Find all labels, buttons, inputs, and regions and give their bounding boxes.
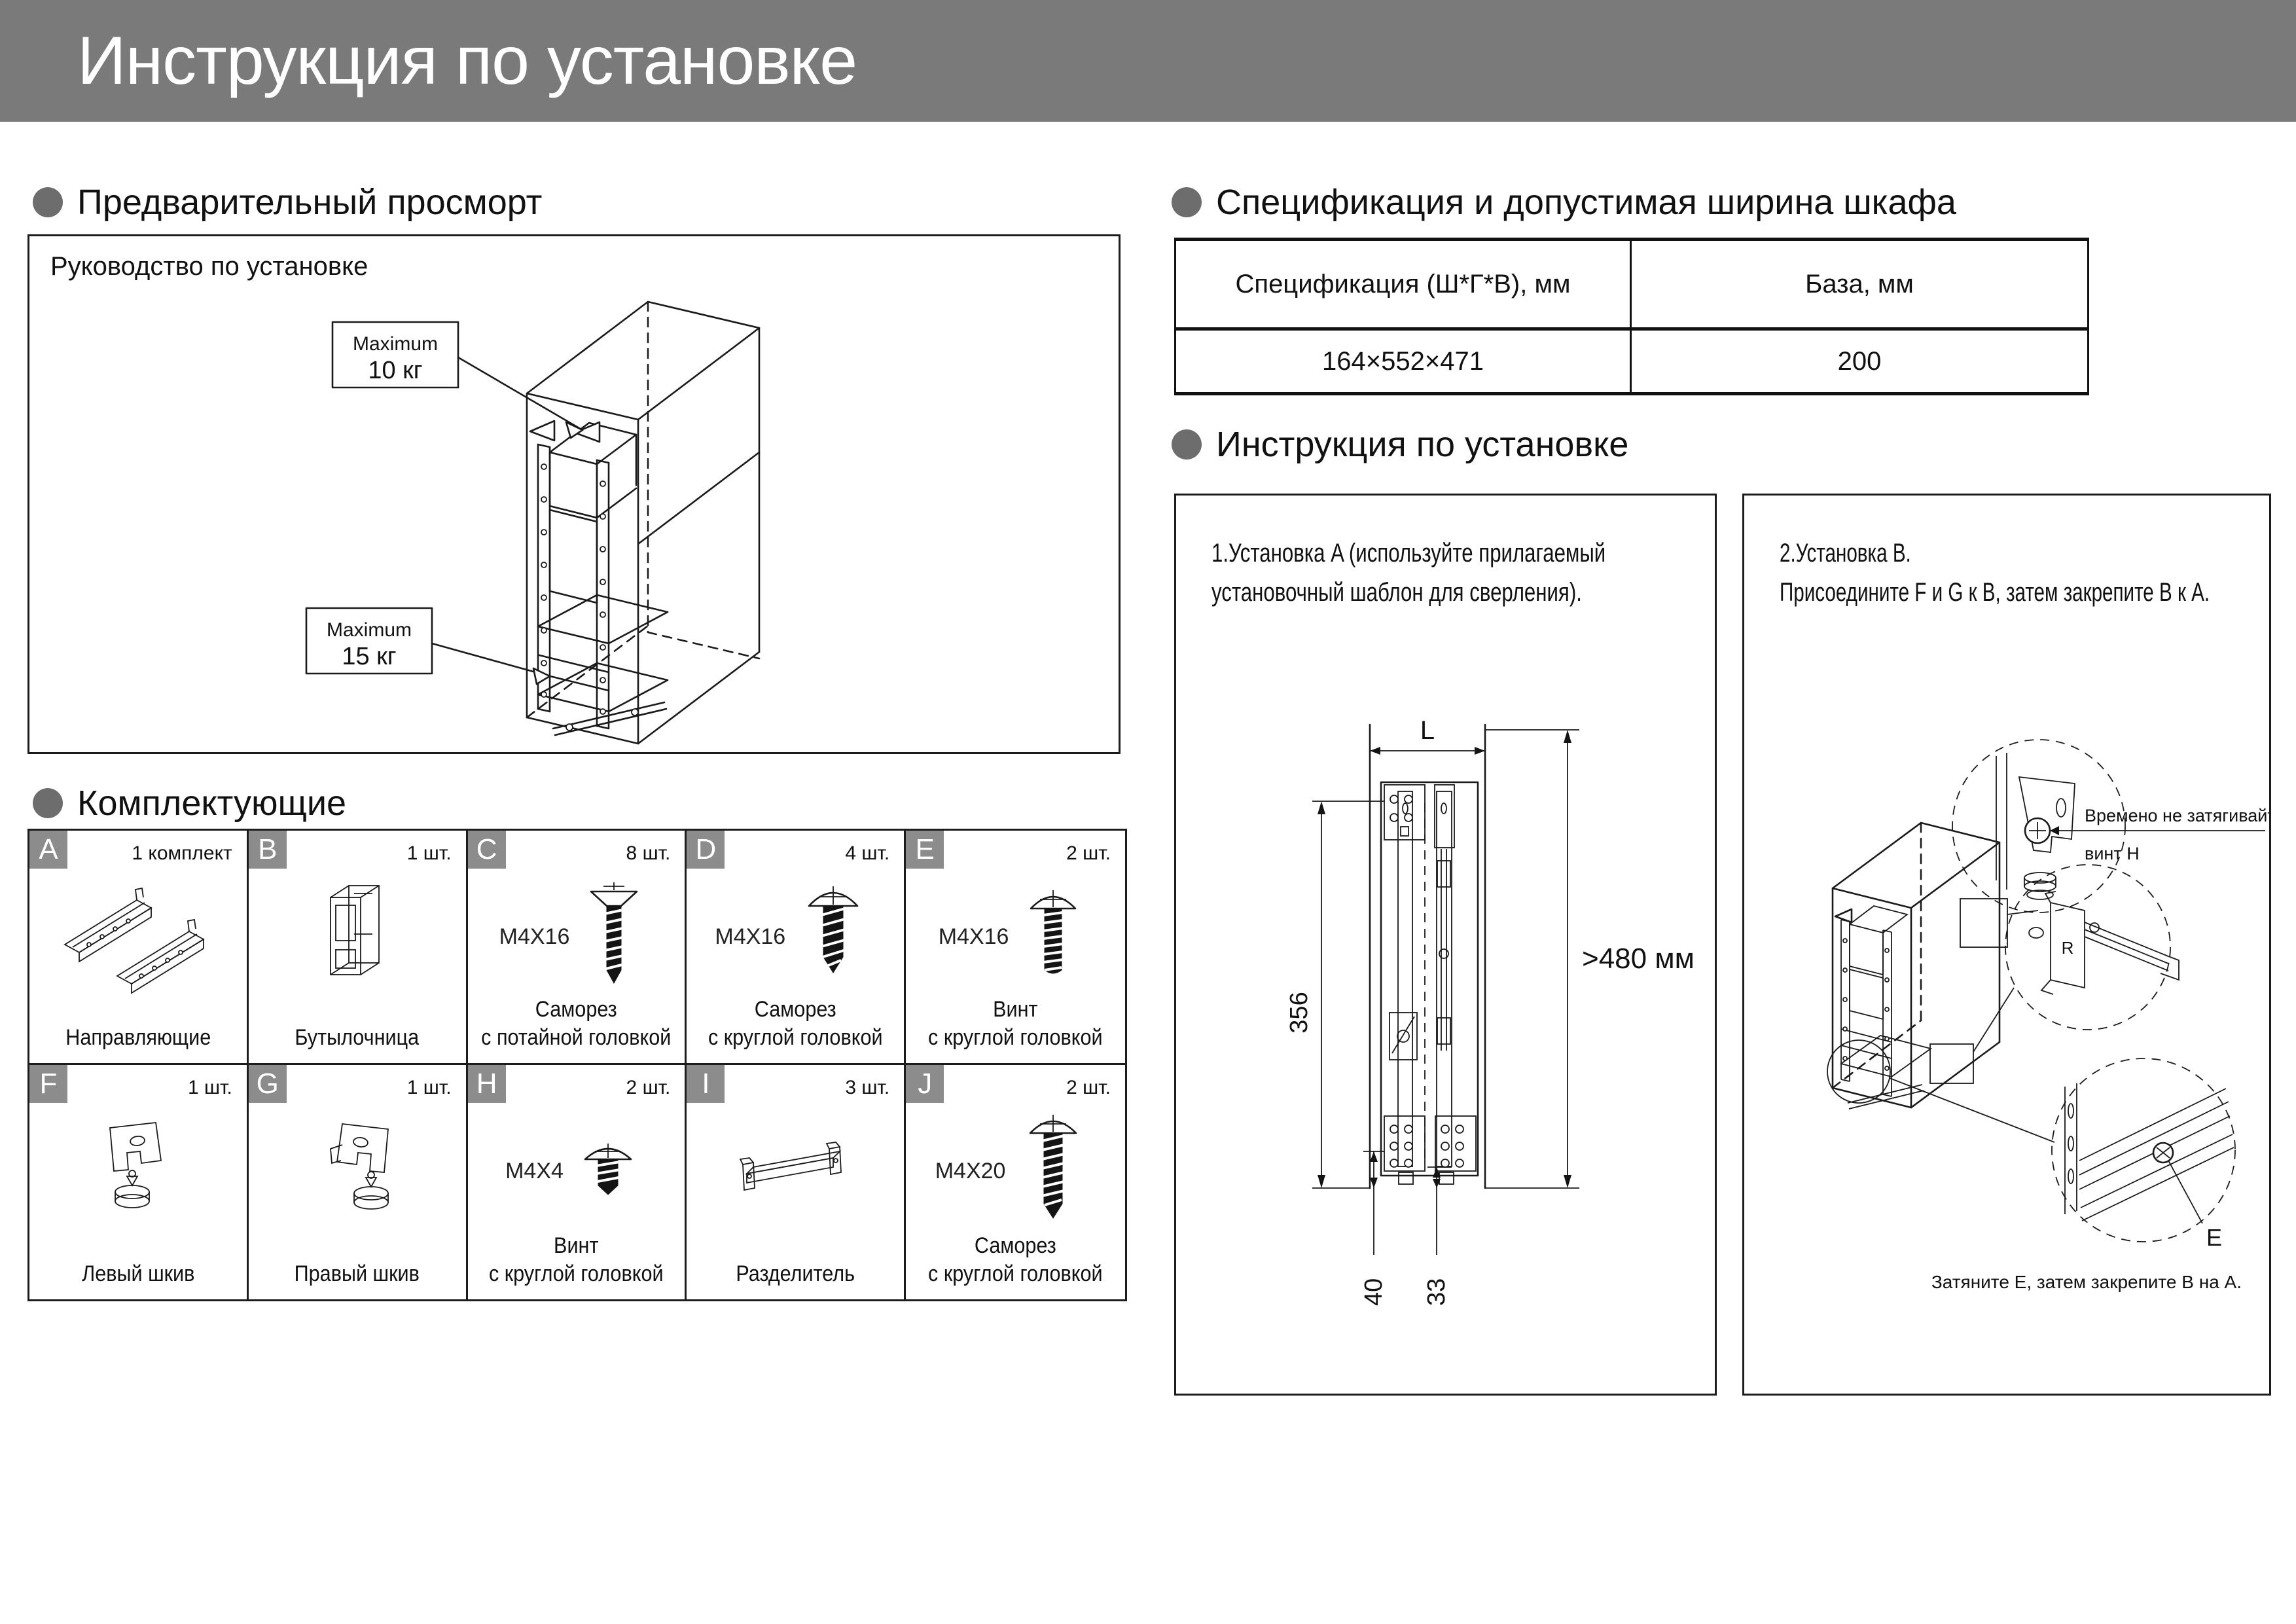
drilling-template-drawing: L >480 мм 356 (1176, 496, 1715, 1394)
part-qty: 1 комплект (132, 842, 232, 865)
part-qty: 2 шт. (626, 1077, 671, 1099)
screw-size-label: M4X4 (505, 1159, 564, 1184)
bullet-icon (33, 788, 63, 818)
part-letter-badge: B (249, 831, 287, 869)
right-pulley-icon (289, 1106, 426, 1236)
section-components-heading: Комплектующие (33, 783, 346, 823)
part-qty: 4 шт. (845, 842, 889, 865)
instruction-sheet: Инструкция по установке Предварительный … (0, 0, 2296, 1624)
part-qty: 1 шт. (407, 842, 452, 865)
part-cell-d: D 4 шт. M4X16 Саморез с круглой головкой (687, 831, 906, 1065)
part-qty: 3 шт. (845, 1077, 889, 1099)
title-banner: Инструкция по установке (0, 0, 2296, 122)
page-title: Инструкция по установке (0, 0, 2296, 122)
part-cell-e: E 2 шт. M4X16 Винт с круглой головкой (906, 831, 1125, 1065)
part-letter-badge: J (906, 1065, 944, 1103)
dim-40: 40 (1360, 1151, 1388, 1306)
part-qty: 1 шт. (188, 1077, 232, 1099)
spec-table: Спецификация (Ш*Г*В), мм База, мм 164×55… (1174, 238, 2089, 395)
section-install-heading: Инструкция по установке (1172, 424, 1628, 465)
section-spec-heading: Спецификация и допустимая ширина шкафа (1172, 182, 1956, 223)
part-cell-b: B 1 шт. Бутылочница (249, 831, 468, 1065)
label-e: E (2206, 1224, 2222, 1251)
callout-line1: Времено не затягивайте (2085, 806, 2269, 825)
machine-screw-icon (1014, 875, 1092, 999)
long-screw-icon (1011, 1106, 1096, 1236)
section-title: Комплектующие (77, 783, 346, 823)
countersunk-screw-icon (575, 875, 653, 999)
callout-line2: 10 кг (368, 357, 422, 384)
section-title: Инструкция по установке (1216, 424, 1628, 465)
screw-size-label: M4X20 (935, 1159, 1006, 1184)
detail-circle-bracket-r: R (2005, 865, 2179, 1030)
section-title: Предварительный просморт (77, 182, 542, 223)
screw-size-label: M4X16 (499, 924, 570, 950)
part-letter-badge: F (29, 1065, 67, 1103)
assembly-detail-drawing: Времено не затягивайте винт H R (1744, 496, 2269, 1394)
svg-text:356: 356 (1285, 992, 1313, 1033)
dim-33: 33 (1423, 1167, 1452, 1306)
part-letter-badge: H (468, 1065, 506, 1103)
small-screw-icon (569, 1125, 647, 1217)
step2-caption: Затяните E, затем закрепите B на A. (1895, 1272, 2242, 1293)
part-letter-badge: D (687, 831, 725, 869)
part-cell-i: I 3 шт. Разделитель (687, 1065, 906, 1299)
spec-col2-header: База, мм (1632, 241, 2087, 327)
spec-value-row: 164×552×471 200 (1176, 331, 2087, 392)
screw-size-label: M4X16 (939, 924, 1009, 950)
callout-line1: Maximum (353, 333, 438, 355)
spec-header-row: Спецификация (Ш*Г*В), мм База, мм (1176, 241, 2087, 331)
preview-box: Руководство по установке (27, 234, 1121, 754)
part-cell-g: G 1 шт. Правый шкив (249, 1065, 468, 1299)
cabinet-overview-drawing: Maximum 10 кг Maximum 15 кг (29, 236, 1119, 752)
svg-text:>480 мм: >480 мм (1582, 943, 1695, 975)
bullet-icon (1172, 187, 1202, 217)
bottle-rack-icon (289, 871, 426, 1002)
callout-line1: Maximum (327, 619, 412, 641)
bullet-icon (33, 187, 63, 217)
part-qty: 2 шт. (1066, 1077, 1111, 1099)
divider-icon (723, 1119, 867, 1223)
bullet-icon (1172, 429, 1202, 460)
screw-size-label: M4X16 (715, 924, 785, 950)
part-letter-badge: C (468, 831, 506, 869)
dim-480: >480 мм (1485, 730, 1695, 1188)
part-letter-badge: G (249, 1065, 287, 1103)
callout-line2: винт H (2085, 844, 2140, 863)
svg-text:40: 40 (1360, 1278, 1388, 1306)
part-qty: 8 шт. (626, 842, 671, 865)
callout-max-15kg: Maximum 15 кг (306, 608, 550, 684)
round-head-screw-icon (791, 875, 876, 999)
slides-icon (46, 871, 230, 1002)
part-name: Винт с круглой головкой (878, 996, 1154, 1051)
install-step1-box: 1.Установка A (используйте прилагаемый у… (1174, 494, 1717, 1396)
section-preview-heading: Предварительный просморт (33, 182, 542, 223)
part-name: Саморез с круглой головкой (878, 1232, 1154, 1288)
part-qty: 2 шт. (1066, 842, 1111, 865)
callout-line2: 15 кг (342, 643, 396, 670)
svg-text:33: 33 (1423, 1278, 1450, 1306)
mini-cabinet (1833, 823, 2000, 1108)
part-cell-a: A 1 комплект Направляющие (29, 831, 249, 1065)
part-cell-c: C 8 шт. M4X16 Саморез с потайной головко… (468, 831, 687, 1065)
part-cell-f: F 1 шт. Левый шкив (29, 1065, 249, 1299)
spec-col1-header: Спецификация (Ш*Г*В), мм (1176, 241, 1632, 327)
part-cell-j: J 2 шт. M4X20 Саморез с круглой головкой (906, 1065, 1125, 1299)
part-letter-badge: E (906, 831, 944, 869)
part-qty: 1 шт. (407, 1077, 452, 1099)
install-step2-box: 2.Установка B. Присоедините F и G к B, з… (1742, 494, 2271, 1396)
part-letter-badge: A (29, 831, 67, 869)
spec-col2-value: 200 (1632, 331, 2087, 392)
part-letter-badge: I (687, 1065, 725, 1103)
svg-text:L: L (1420, 716, 1435, 745)
dim-L: L (1370, 716, 1485, 755)
left-pulley-icon (69, 1106, 207, 1236)
detail-circle-screw-e: E (2052, 1058, 2235, 1251)
label-r: R (2062, 938, 2074, 958)
parts-grid: A 1 комплект Направляющие B 1 шт. (27, 829, 1127, 1301)
spec-col1-value: 164×552×471 (1176, 331, 1632, 392)
part-cell-h: H 2 шт. M4X4 Винт с круглой головкой (468, 1065, 687, 1299)
section-title: Спецификация и допустимая ширина шкафа (1216, 182, 1956, 223)
